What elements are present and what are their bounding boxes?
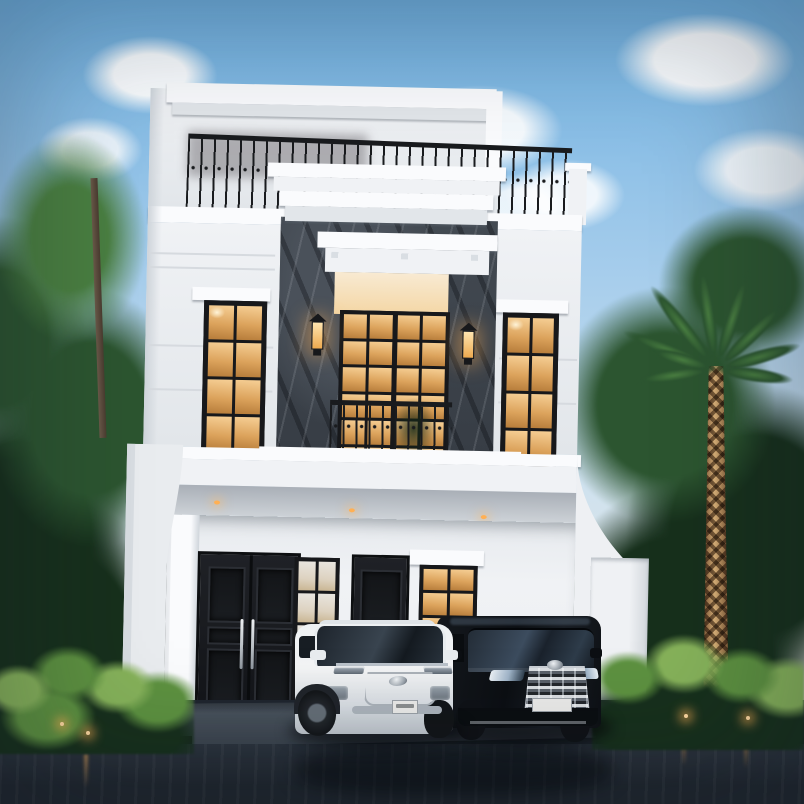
sconce-glow: [462, 331, 475, 359]
sconce-cap: [309, 313, 327, 321]
wall-sconce-left: [308, 313, 327, 361]
suv-lamp-right: [430, 686, 450, 700]
door-pane: [369, 315, 392, 339]
interior-light-glow: [508, 319, 524, 331]
door-pane: [396, 342, 419, 366]
van-mirror-right: [590, 648, 602, 658]
suv-mirror-right: [444, 650, 458, 660]
window-pane: [450, 569, 474, 591]
window-pane: [532, 318, 554, 353]
soffit-downlight: [481, 515, 487, 519]
interior-light-glow: [209, 306, 225, 318]
window-upper-right: [500, 312, 559, 471]
van-headlight-left: [489, 670, 526, 681]
sconce-base: [313, 349, 321, 355]
plate-marks: [396, 704, 414, 708]
door-panel: [255, 627, 292, 646]
window-pane: [423, 569, 447, 591]
window-pane: [234, 417, 260, 452]
window-pane: [235, 380, 261, 415]
door-pane: [343, 314, 366, 338]
car-reflection: [296, 744, 612, 796]
window-lintel-right: [490, 299, 568, 314]
window-upper-left: [201, 300, 267, 456]
window-pane: [530, 394, 552, 429]
door-panel: [256, 567, 294, 624]
suv-drl-left: [333, 666, 364, 674]
garden-light: [746, 716, 750, 720]
window-pane: [423, 593, 447, 615]
wall-sconce-right: [459, 323, 478, 371]
door-pane: [342, 367, 365, 391]
light-reflection: [84, 754, 88, 788]
fern-bed-left: [0, 632, 194, 754]
window-pane: [449, 594, 473, 616]
sconce-base: [464, 359, 472, 365]
suv-license-plate: [392, 700, 418, 714]
van-windshield: [468, 628, 594, 672]
window-pane: [206, 416, 232, 451]
door-panel: [207, 566, 245, 623]
garden-light: [60, 722, 64, 726]
door-pane: [343, 341, 366, 365]
van-emblem: [547, 660, 563, 670]
sconce-glow: [311, 321, 324, 349]
door-panel: [207, 626, 244, 645]
door-pane: [397, 315, 420, 339]
door-pane: [369, 341, 392, 365]
sidelight-pane: [318, 562, 336, 591]
window-pane: [506, 393, 528, 428]
window-pane: [208, 342, 234, 377]
window-pane: [531, 356, 553, 391]
van-roof-gloss: [450, 618, 590, 625]
window-pane: [207, 379, 233, 414]
door-pane: [423, 316, 446, 340]
door-pane: [422, 342, 445, 366]
garden-light: [86, 731, 90, 735]
sidelight-pane: [298, 561, 316, 590]
sidelight-pane: [298, 593, 316, 622]
door-pane: [396, 368, 419, 392]
van-license-plate: [532, 698, 572, 712]
window-pane: [236, 306, 262, 341]
garden-light: [684, 714, 688, 718]
window-pane: [506, 355, 528, 390]
ground-window-cornice: [410, 550, 484, 567]
fern-bed-right: [592, 626, 804, 750]
soffit-downlight: [349, 508, 355, 512]
sconce-cap: [460, 323, 478, 331]
sidelight-pane: [318, 593, 336, 622]
suv-mirror-left: [310, 650, 326, 660]
door-pane: [368, 368, 391, 392]
dusk-house-rendering: [0, 0, 804, 804]
suv-windshield: [314, 626, 446, 666]
van-bumper-chrome: [470, 721, 586, 724]
soffit-downlight: [214, 500, 220, 504]
window-pane: [236, 343, 262, 378]
door-pane: [422, 369, 445, 393]
